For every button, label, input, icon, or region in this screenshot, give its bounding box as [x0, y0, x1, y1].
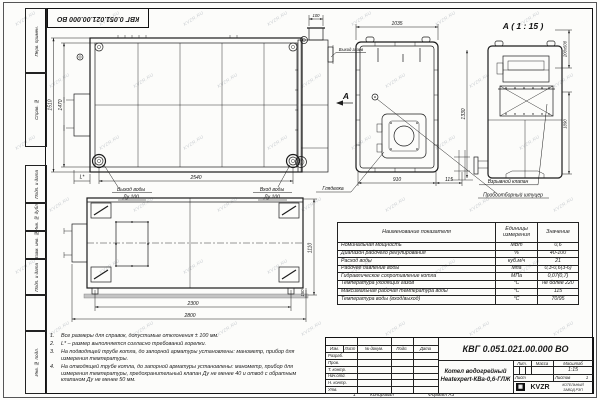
tb-sheets-value: 1 [581, 374, 593, 381]
tb-row-nachotd: Нач.отд. [326, 373, 359, 380]
explosion-valve [498, 86, 555, 116]
dim-leg-height: 150 [300, 289, 305, 297]
note-item: 3.На подводящей трубе котла, до запорной… [50, 349, 302, 363]
dim-plan-width: 2540 [189, 175, 201, 181]
company-logo-mark: ▦ [516, 383, 525, 391]
notes-block: 1.Все размеры для справок, допустимые от… [50, 333, 302, 385]
tb-col-ndokum: № докум. [357, 345, 391, 352]
param-unit: °С [496, 296, 538, 304]
dim-duct-size: 200х500 [563, 40, 568, 58]
title-block: Изм. Лист № докум. Подп. Дата Разраб. Пр… [325, 337, 594, 394]
note-number: 2. [50, 341, 61, 348]
col-header-name: Наименование показателя [338, 223, 496, 243]
company-name-line2: ЗАВОД РЭП [554, 387, 592, 392]
param-name: Температура воды (вход/выход) [338, 296, 496, 304]
tb-col-data: Дата [413, 345, 438, 352]
section-title: А ( 1 : 15 ) [502, 21, 544, 31]
col-header-units: Единицы измерения [496, 223, 538, 243]
dim-front-width-top: 1035 [391, 21, 402, 27]
param-unit: °С [496, 289, 538, 297]
company-logo-text: KVZR [525, 381, 555, 393]
tb-row-tkontr: Т. контр. [326, 366, 359, 373]
dim-front-width-bottom: 910 [393, 177, 402, 183]
format-label: Формат А3 [428, 393, 454, 398]
tb-row-prov: Пров. [326, 359, 359, 366]
dim-section-height-left: 1330 [461, 108, 467, 119]
tb-col-podp: Подп. [391, 345, 413, 352]
label-sampling-fitting: Пробоотборный штуцер [483, 192, 543, 199]
note-item: 1.Все размеры для справок, допустимые от… [50, 333, 302, 340]
note-number: 3. [50, 349, 61, 363]
note-text: Все размеры для справок, допустимые откл… [61, 333, 302, 340]
dim-side-width-outer: 2800 [183, 313, 195, 319]
tb-product-name: Котел водогрейный Heatexpert-КВа-0,6-ГЛЖ [438, 360, 513, 393]
burner-plate [74, 94, 90, 136]
tb-sheet-label: Лист [513, 374, 555, 381]
table-header-row: Наименование показателя Единицы измерени… [338, 223, 578, 243]
dim-section-height-right: 1090 [563, 119, 568, 129]
drawing-sheet: KVZR.RUKVZR.RUKVZR.RUKVZR.RUKVZR.RUKVZR.… [0, 0, 600, 400]
tb-lit-label: Лит. [513, 360, 531, 366]
tb-col-izm: Изм. [326, 345, 343, 352]
table-row: Температура воды (вход/выход)°С70/95 [338, 296, 578, 304]
tb-col-list: Лист [343, 345, 357, 352]
dim-flue-width: 100 [313, 13, 321, 18]
note-number: 1. [50, 333, 61, 340]
dim-plan-height-outer: 1510 [48, 99, 54, 110]
param-value: 70/95 [538, 296, 578, 304]
manhole [377, 114, 426, 158]
tb-doc-number: КВГ 0.051.021.00.000 ВО [438, 338, 593, 360]
note-text: На подводящей трубе котла, до запорной а… [61, 349, 302, 363]
left-elevation-view: 100 Выход газов А [295, 13, 366, 172]
product-line2: Heatexpert-КВа-0,6-ГЛЖ [441, 377, 511, 385]
plan-view: 1510 1470 2540 L* Выход воды Ду 100 Вход… [48, 35, 303, 201]
copied-label: Копировал [370, 393, 394, 398]
table-row: Диапазон рабочего регулирования%40-100 [338, 251, 578, 259]
table-row: Максимальная рабочая температура воды°С1… [338, 289, 578, 297]
side-door [116, 222, 148, 266]
param-value: 115 [538, 289, 578, 297]
burner-plate-side [72, 224, 87, 262]
param-name: Максимальная рабочая температура воды [338, 289, 496, 297]
flue-outlet [309, 28, 323, 40]
tb-scale-value: 1:15 [553, 366, 593, 374]
note-item: 2.L* – размер выполняется согласно требо… [50, 341, 302, 348]
tb-sheets-label: Листов [553, 374, 583, 381]
note-text: На отводящей трубе котла, до запорной ар… [61, 364, 302, 385]
tb-mass-label: Масса [531, 360, 553, 366]
label-water-out: Выход воды [117, 187, 145, 193]
dim-burner-size: L* [80, 175, 86, 181]
dim-plan-height-inner: 1470 [58, 99, 64, 110]
tb-row-nkontr: Н. контр. [326, 379, 359, 386]
note-text: L* – размер выполняется согласно требова… [61, 341, 302, 348]
base-rail [84, 294, 308, 298]
label-explosion-valve: Взрывной клапан [488, 178, 529, 185]
section-arrow-label: А [342, 91, 349, 101]
side-view: 2300 2800 1110 150 [64, 198, 317, 322]
product-line1: Котел водогрейный [445, 369, 507, 377]
parameters-table: Наименование показателя Единицы измерени… [337, 222, 579, 305]
note-number: 4. [50, 364, 61, 385]
note-item: 4.На отводящей трубе котла, до запорной … [50, 364, 302, 385]
dim-side-width-inner: 2300 [186, 301, 198, 307]
dim-side-height: 1110 [308, 243, 314, 254]
sheet-mark: 1 [353, 393, 356, 398]
label-sight-glass: Гляделка [322, 186, 344, 192]
label-water-in: Вход воды [260, 187, 285, 193]
col-header-value: Значение [538, 223, 578, 243]
tb-row-razrab: Разраб. [326, 352, 359, 359]
